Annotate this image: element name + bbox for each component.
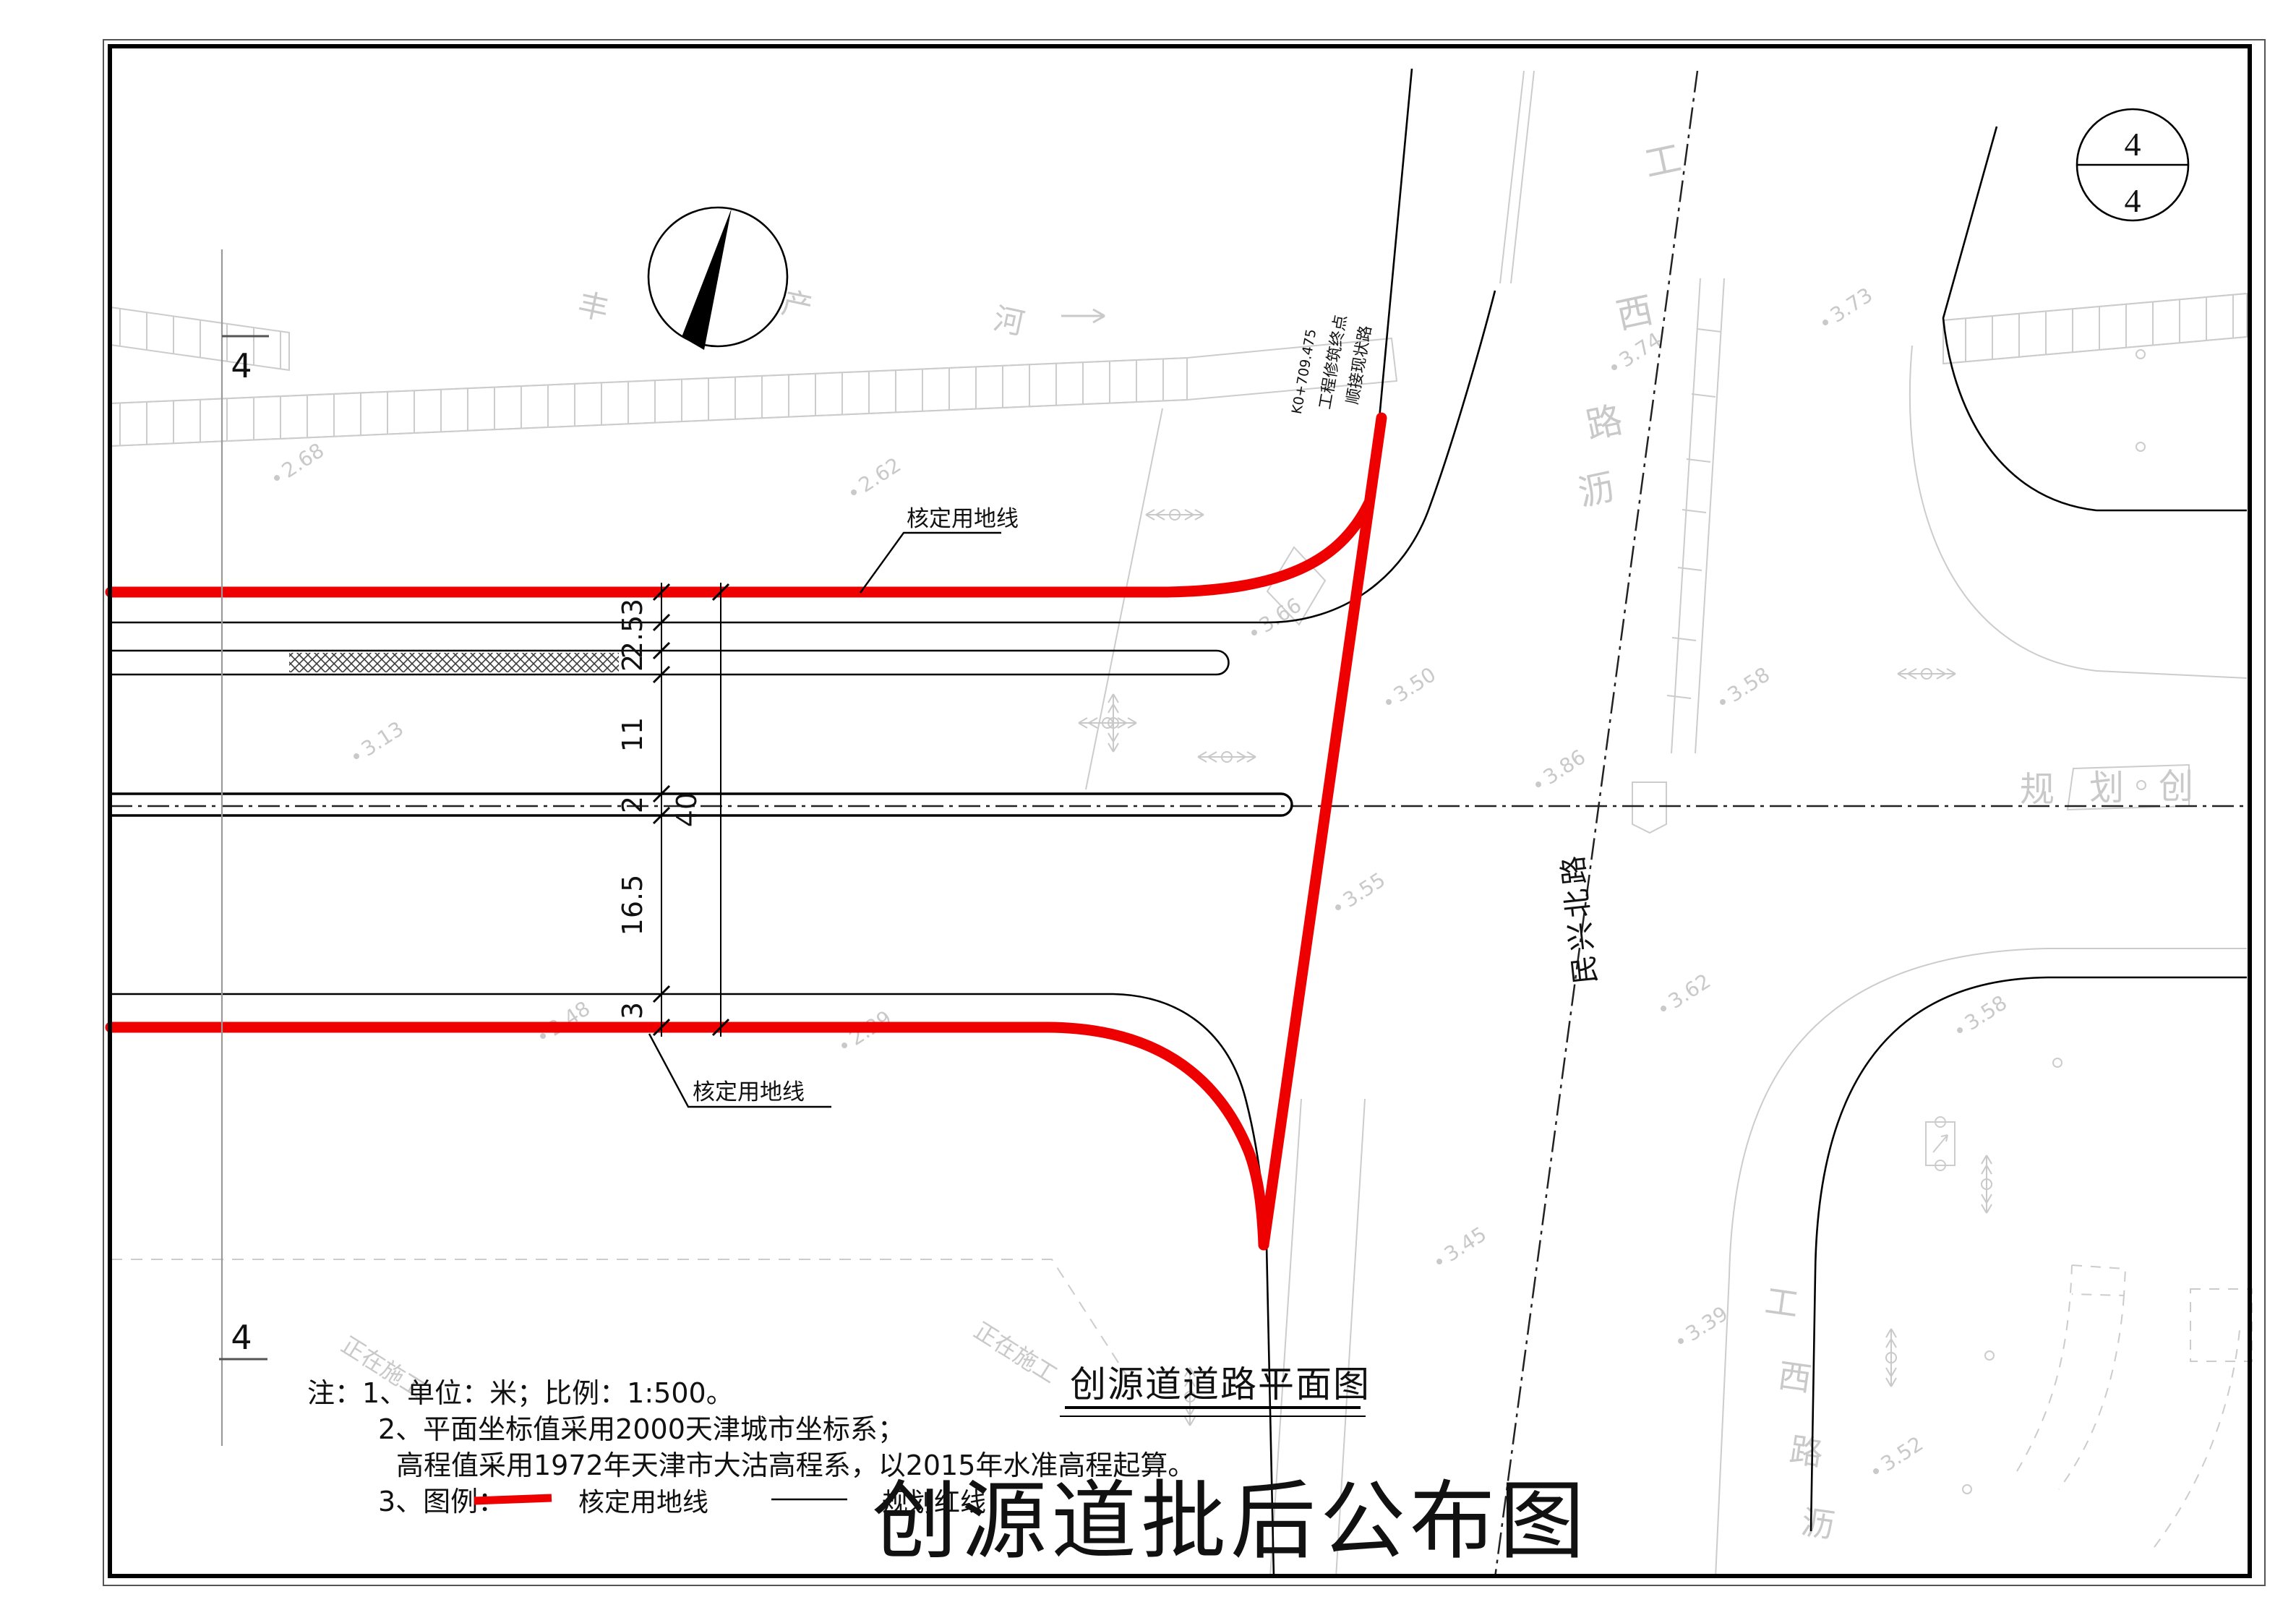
existing-road-edge — [1511, 71, 1534, 283]
side-road-char: 路 — [1582, 398, 1627, 447]
crosshatch-strip — [289, 653, 619, 672]
dim-label: 16.5 — [617, 875, 648, 936]
sheet-number-badge: 4 4 — [2077, 109, 2188, 220]
side-road-char: 路 — [1787, 1430, 1825, 1473]
spot-elevation: 3.50 — [1389, 662, 1440, 707]
dim-label: 2 — [617, 796, 648, 813]
survey-arrow-icon — [1982, 1155, 1992, 1213]
approved-landuse-lines — [111, 418, 1382, 1245]
existing-terrain-layer — [111, 71, 2252, 1577]
side-road-char: 沥 — [1575, 466, 1619, 514]
under-construction-label: 正在施工 — [969, 1316, 1063, 1389]
median-rounded-end — [1281, 794, 1292, 815]
north-arrow-icon — [648, 207, 787, 350]
river-name-char: 河 — [990, 301, 1027, 342]
main-title: 创源道批后公布图 — [872, 1475, 1589, 1570]
sheet-number-top: 4 — [2125, 126, 2141, 163]
lane-separator-stadium — [111, 651, 1229, 675]
legend-red-label: 核定用地线 — [578, 1488, 708, 1517]
existing-curb-se — [1715, 948, 2247, 1577]
survey-arrow-icon — [1198, 752, 1256, 762]
dim-label: 3 — [617, 1002, 648, 1019]
survey-arrow-icon — [1886, 1329, 1896, 1387]
planning-strip-char: 创 — [2159, 766, 2193, 807]
plan-title-block: 创源道道路平面图 — [1060, 1363, 1371, 1416]
parcel-pentagon — [1632, 782, 1666, 833]
existing-path-nw — [1086, 408, 1162, 789]
approved-line-label-top: 核定用地线 — [907, 506, 1019, 532]
existing-road-edge — [1500, 71, 1524, 283]
spot-elevation: 3.45 — [1440, 1222, 1491, 1267]
spot-elevation: 3.66 — [1255, 593, 1306, 638]
planning-strip-char: 规 — [2020, 769, 2055, 810]
flow-direction-arrow — [1061, 309, 1105, 322]
spot-elevation: 3.39 — [1682, 1301, 1732, 1346]
terminus-station: K0+709.475 — [1289, 327, 1319, 415]
dashed-features-se — [2017, 1265, 2252, 1547]
note-line-2: 2、平面坐标值采用2000天津城市坐标系； — [378, 1413, 905, 1445]
matchline-number-bottom: 4 — [231, 1318, 252, 1357]
spot-elevation: 3.13 — [357, 716, 408, 761]
spot-elevation: 2.48 — [544, 996, 594, 1041]
dim-label: 2.5 — [617, 615, 648, 659]
sheet-number-bottom: 4 — [2125, 182, 2141, 219]
matchline-number-top: 4 — [231, 346, 252, 385]
spot-elevation: 3.73 — [1826, 283, 1877, 327]
river-hatch-band-west — [111, 307, 1397, 446]
legend-red-sample — [474, 1498, 552, 1501]
planning-strip-char: 划 — [2089, 768, 2124, 808]
survey-arrow-icon — [1898, 669, 1956, 679]
spot-elevations: 2.68 2.62 3.13 2.48 2.29 3.74 3.73 3.50 … — [267, 283, 2011, 1482]
spot-elevation: 2.68 — [278, 438, 328, 483]
dim-total-label: 40 — [671, 792, 703, 827]
survey-arrow-icon — [1146, 510, 1204, 520]
spot-elevation: 3.55 — [1339, 868, 1389, 912]
utility-box — [1926, 1117, 1955, 1170]
faint-text-layer: 丰 产 河 工 西 路 沥 工 西 路 沥 规 划 创 正在施工 正在施工 — [336, 137, 2193, 1546]
terminus-annotation: K0+709.475 工程修筑终点 顺接现状路 — [1289, 314, 1376, 416]
spot-elevation: 3.52 — [1877, 1431, 1927, 1476]
planning-redline-layer — [111, 69, 2247, 1577]
side-road-char: 沥 — [1799, 1502, 1837, 1546]
river-hatch-band-east — [1943, 294, 2247, 364]
spot-elevation: 3.58 — [1723, 662, 1774, 707]
sheet-frame — [103, 40, 2265, 1585]
drawing-sheet: 丰 产 河 工 西 路 沥 工 西 路 沥 规 划 创 正在施工 正在施工 2.… — [0, 0, 2296, 1623]
side-road-char: 工 — [1641, 137, 1685, 185]
dimension-labels: 3 2.5 2 11 2 16.5 3 40 — [617, 599, 703, 1019]
spot-elevation: 3.86 — [1539, 745, 1590, 789]
spot-elevation: 3.58 — [1961, 990, 2011, 1035]
dim-label: 2 — [617, 654, 648, 672]
plan-title: 创源道道路平面图 — [1070, 1363, 1371, 1405]
dim-label: 11 — [617, 717, 648, 752]
dim-label: 3 — [617, 599, 648, 616]
approved-line-label-bottom: 核定用地线 — [693, 1079, 805, 1105]
minxing-road-label: 民兴北路 — [1556, 849, 1603, 985]
terminus-line3: 顺接现状路 — [1344, 325, 1376, 406]
river-name-char: 丰 — [575, 286, 612, 327]
approved-line-south — [111, 1027, 1264, 1245]
spot-elevation: 2.62 — [854, 453, 905, 497]
side-road-char: 西 — [1775, 1356, 1814, 1399]
side-road-char: 工 — [1762, 1281, 1801, 1324]
existing-parcel-strip — [1667, 278, 1724, 753]
road-plan-canvas: 丰 产 河 工 西 路 沥 工 西 路 沥 规 划 创 正在施工 正在施工 2.… — [0, 0, 2296, 1623]
river-name-char: 产 — [779, 285, 815, 326]
road-centerlines — [111, 71, 2247, 1577]
spot-elevation: 3.62 — [1664, 969, 1715, 1014]
note-line-1: 注：1、单位：米；比例：1:500。 — [307, 1377, 734, 1409]
